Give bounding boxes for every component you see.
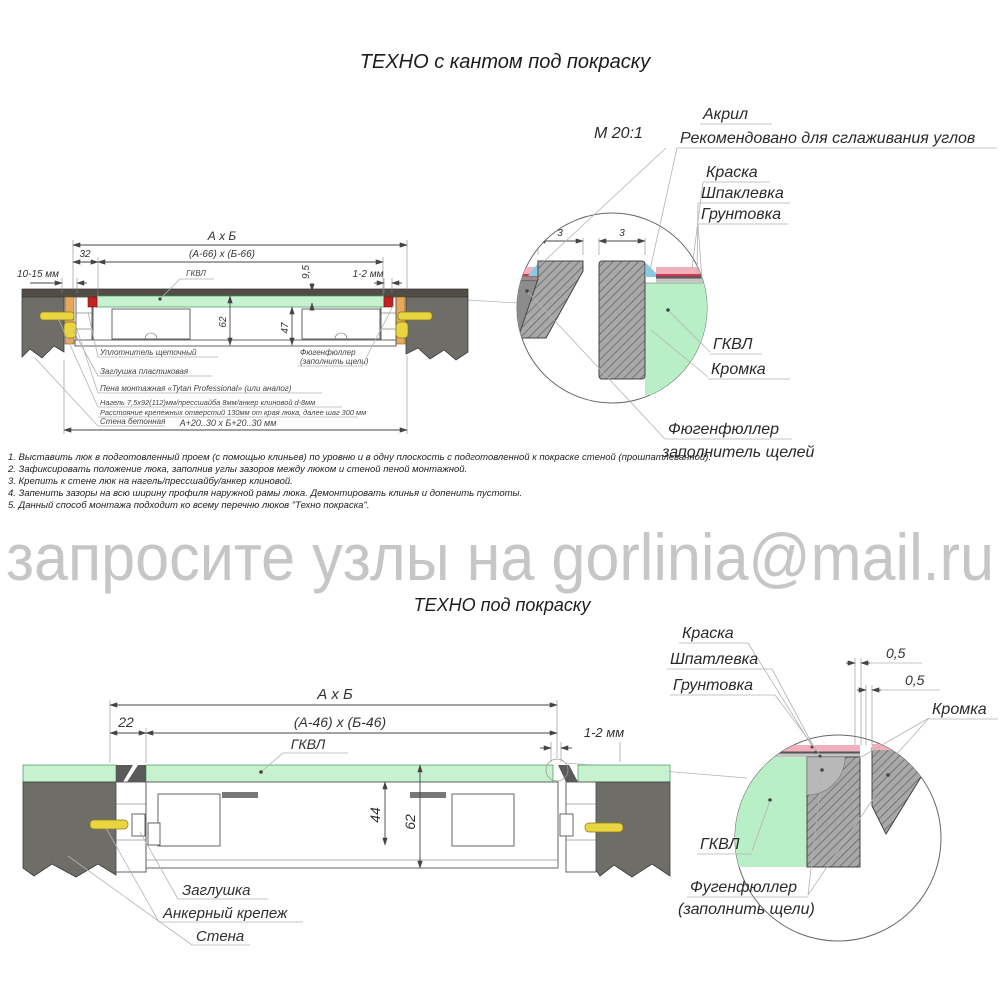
svg-text:Стена: Стена [196,928,244,945]
top-assembly-drawing: А х Б 32 (А-66) х (Б-66) 10-15 мм ГКВЛ [17,229,518,434]
note-2: 2. Зафиксировать положение люка, заполни… [7,464,467,475]
svg-text:ГКВЛ: ГКВЛ [186,269,206,278]
svg-text:Стена бетонная: Стена бетонная [100,417,166,426]
note-1: 1. Выставить люк в подготовленный проем … [8,452,711,463]
svg-text:Фюгенфюллер: Фюгенфюллер [668,421,779,438]
gkvl-region [645,283,715,395]
svg-text:Заглушка: Заглушка [182,882,250,899]
svg-text:62: 62 [218,316,229,328]
leaf-box-right [302,309,380,339]
svg-text:62: 62 [402,814,418,830]
anchor-bolt-left-b [90,820,128,829]
bottom-assembly-drawing: А х Б 22 (А-46) х (Б-46) 1-2 мм ГКВЛ [23,686,747,945]
svg-text:Шпатлевка: Шпатлевка [670,651,758,668]
svg-text:Краска: Краска [706,164,758,181]
svg-text:(заполнить щели): (заполнить щели) [300,357,369,366]
svg-text:Акрил: Акрил [702,106,748,123]
svg-text:Расстояние крепежных отверстий: Расстояние крепежных отверстий 130мм от … [100,408,366,417]
bottom-title: ТЕХНО под покраску [414,595,592,615]
svg-text:Кромка: Кромка [711,361,766,378]
top-view: ТЕХНО с кантом под покраску [17,51,997,461]
svg-text:А+20..30 х Б+20..30 мм: А+20..30 х Б+20..30 мм [179,418,277,428]
svg-text:Грунтовка: Грунтовка [701,206,781,223]
svg-text:22: 22 [117,714,134,730]
svg-text:Фюгенфюллер: Фюгенфюллер [300,348,356,357]
concrete-wall-left-b [23,782,116,877]
svg-text:ГКВЛ: ГКВЛ [291,736,326,752]
svg-text:47: 47 [280,322,291,334]
seal-rail-right [410,792,446,798]
note-3: 3. Крепить к стене люк на нагель/прессша… [8,476,293,487]
svg-text:Фугенфюллер: Фугенфюллер [690,879,797,896]
gkvl-region-b [730,757,807,867]
technical-drawing: ТЕХНО с кантом под покраску [0,0,1000,1000]
svg-text:ГКВЛ: ГКВЛ [713,336,752,353]
note-5: 5. Данный способ монтажа подходит ко все… [8,500,369,511]
seal-right [384,297,393,307]
svg-text:Кромка: Кромка [932,701,987,718]
dim-chamfer-2: 0,5 [857,672,940,745]
svg-text:Краска: Краска [682,625,734,642]
svg-text:(заполнить щели): (заполнить щели) [678,901,815,918]
svg-text:А х Б: А х Б [207,229,237,243]
anchor-bolt-right-b [585,823,623,832]
svg-text:(А-66) х (Б-66): (А-66) х (Б-66) [189,249,255,260]
gkvl-over-wall-left [23,765,116,782]
svg-text:А х Б: А х Б [316,686,353,703]
note-4: 4. Запенить зазоры на всю ширину профиля… [8,488,522,499]
svg-text:0,5: 0,5 [905,672,925,688]
svg-text:Уплотнитель щеточный: Уплотнитель щеточный [99,348,197,357]
svg-text:Рекомендовано для сглаживания: Рекомендовано для сглаживания углов [680,130,975,147]
svg-text:Шпаклевка: Шпаклевка [701,185,784,202]
watermark-text: запросите узлы на gorlinia@mail.ru [6,520,994,594]
anchor-bolt-right [398,312,432,320]
svg-text:1-2 мм: 1-2 мм [353,269,384,280]
plastic-plug-left-b [132,814,145,836]
svg-text:Нагель 7,5х92(112)мм/прессшайб: Нагель 7,5х92(112)мм/прессшайба 8мм/анке… [100,398,315,407]
top-title: ТЕХНО с кантом под покраску [360,51,651,73]
top-detail-view: М 20:1 [512,106,997,461]
svg-text:1-2 мм: 1-2 мм [584,725,624,740]
svg-text:Анкерный крепеж: Анкерный крепеж [162,905,288,922]
bottom-view: ТЕХНО под покраску [23,595,998,945]
plastic-plug-right-b [560,814,573,836]
dim-chamfer-1: 0,5 [846,645,922,745]
leaf-box-left [112,309,190,339]
seal-rail-left [222,792,258,798]
svg-text:(А-46) х (Б-46): (А-46) х (Б-46) [294,714,386,730]
gkvl-panel [97,296,384,307]
svg-text:Грунтовка: Грунтовка [673,677,753,694]
plastic-plug-right [396,322,408,338]
drawing-sheet: ТЕХНО с кантом под покраску [0,0,1000,1000]
svg-text:0,5: 0,5 [886,645,906,661]
dim-gap-bottom: 1-2 мм [540,725,624,762]
svg-text:3: 3 [619,228,625,239]
installation-notes: 1. Выставить люк в подготовленный проем … [7,452,711,511]
svg-text:44: 44 [367,807,383,823]
hatch-section-door-board [599,261,645,379]
svg-text:9,5: 9,5 [301,265,312,279]
seal-left [88,297,97,307]
svg-text:32: 32 [79,249,91,260]
leaf-box-right-b [452,794,514,846]
svg-text:Заглушка пластиковая: Заглушка пластиковая [100,367,189,376]
svg-text:ГКВЛ: ГКВЛ [700,836,739,853]
anchor-bolt-left [40,312,74,320]
leaf-box-left-b [158,794,220,846]
concrete-wall-left [22,297,64,358]
svg-text:Пена монтажная «Tytan Professi: Пена монтажная «Tytan Professional» (или… [100,384,292,393]
bottom-detail-view: 0,5 0,5 Краска Шпатлевка Грунтовка Кромк… [667,625,998,941]
concrete-wall-right [406,297,468,360]
scale-label: М 20:1 [594,125,643,142]
gkvl-over-wall-right [578,765,670,782]
svg-text:10-15 мм: 10-15 мм [17,269,59,280]
gkvl-over-door [146,765,553,782]
dim-leaf-bottom: 22 (А-46) х (Б-46) [110,714,557,763]
